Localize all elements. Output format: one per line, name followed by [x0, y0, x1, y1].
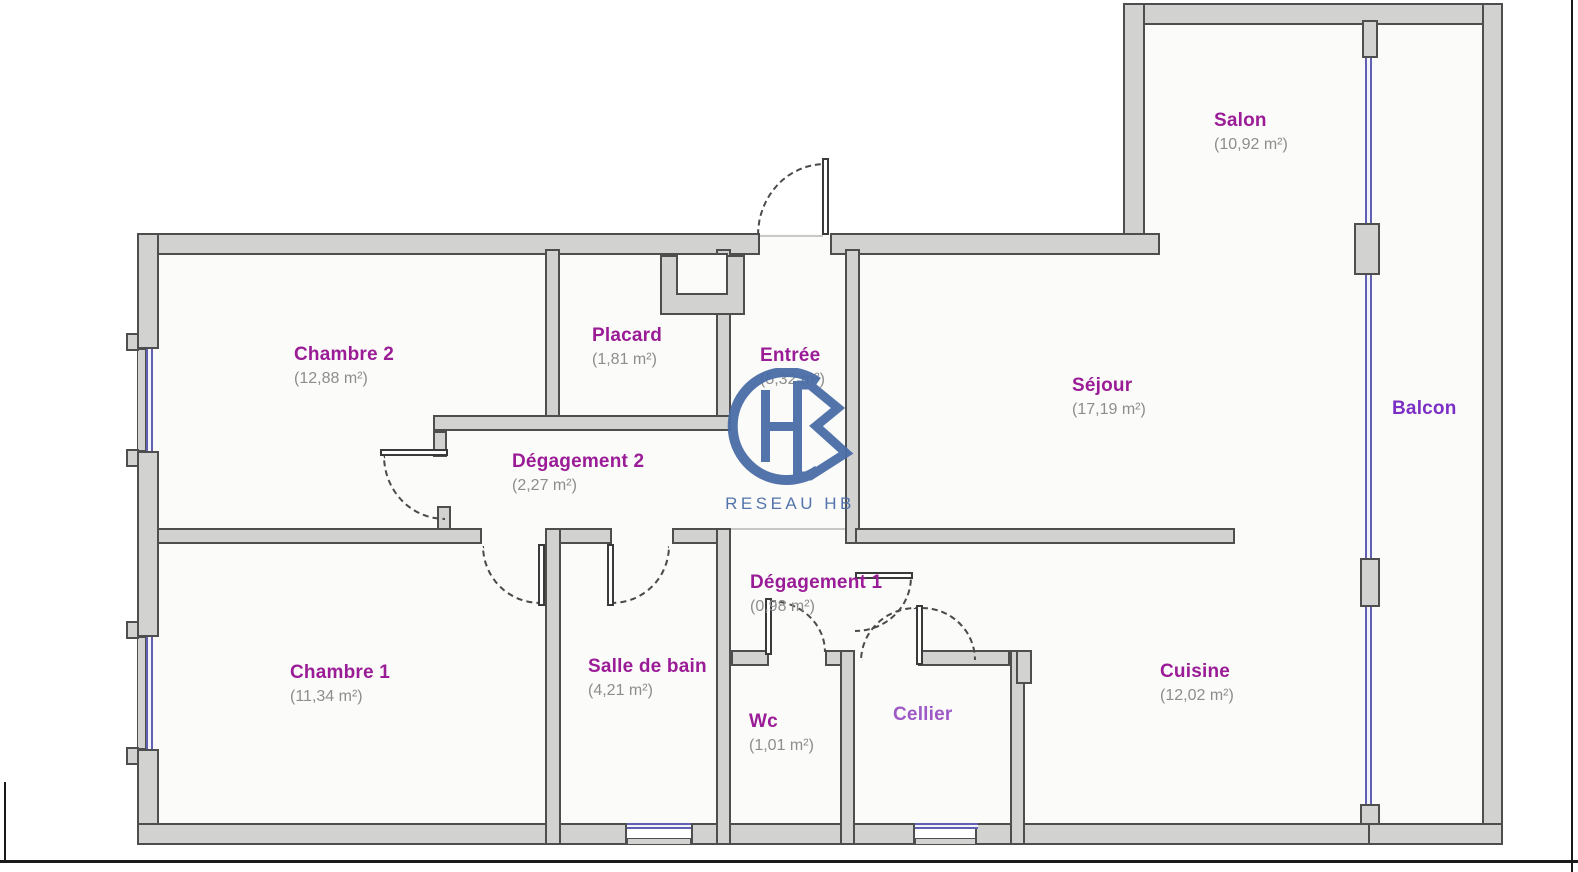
room-area: (10,92 m²)	[1214, 136, 1288, 154]
room-name: Chambre 2	[294, 344, 394, 366]
wall	[433, 415, 731, 431]
wall	[840, 650, 855, 845]
room-area: (0,98 m²)	[750, 598, 882, 616]
threshold-line	[757, 235, 823, 237]
room-label-balcon: Balcon	[1392, 398, 1457, 420]
wall	[137, 349, 146, 451]
room-name: Placard	[592, 325, 662, 347]
room-area: (12,88 m²)	[294, 370, 394, 388]
door-leaf-entrance	[822, 158, 829, 235]
door-leaf-chambre2	[380, 449, 448, 456]
wall	[915, 838, 978, 845]
wall	[1123, 3, 1145, 255]
door-leaf-chambre1	[538, 544, 545, 606]
wall	[1362, 20, 1378, 58]
wall-pier	[1354, 223, 1380, 275]
room-name: Séjour	[1072, 375, 1146, 397]
wall-nub	[126, 449, 139, 467]
room-area: (1,81 m²)	[592, 351, 662, 369]
wall	[1355, 823, 1503, 845]
room-label-degagement2: Dégagement 2 (2,27 m²)	[512, 451, 644, 495]
wall	[731, 650, 769, 666]
room-name: Salon	[1214, 110, 1288, 132]
wall	[545, 528, 561, 845]
wall	[1482, 3, 1503, 845]
room-name: Cellier	[893, 704, 953, 726]
room-area: (4,21 m²)	[588, 682, 707, 700]
room-label-salle-de-bain: Salle de bain (4,21 m²)	[588, 656, 707, 700]
wall	[830, 233, 1160, 255]
room-name: Dégagement 2	[512, 451, 644, 473]
room-label-chambre1: Chambre 1 (11,34 m²)	[290, 662, 390, 706]
wall	[137, 637, 146, 749]
wall-pier	[1360, 558, 1380, 607]
wall	[137, 233, 760, 255]
room-name: Wc	[749, 711, 814, 733]
border-line-right	[1571, 0, 1573, 872]
border-line-left	[4, 782, 6, 860]
window	[1365, 607, 1372, 804]
room-label-sejour: Séjour (17,19 m²)	[1072, 375, 1146, 419]
balcony-floor	[1370, 25, 1482, 823]
door-leaf-salle-de-bain	[607, 544, 614, 606]
window	[1365, 58, 1372, 223]
wall	[1123, 3, 1503, 25]
room-area: (2,27 m²)	[512, 477, 644, 495]
border-line-bottom	[0, 860, 1578, 863]
room-area: (1,01 m²)	[749, 737, 814, 755]
room-label-chambre2: Chambre 2 (12,88 m²)	[294, 344, 394, 388]
wall	[157, 528, 482, 544]
window	[146, 637, 153, 749]
room-area: (12,02 m²)	[1160, 687, 1234, 705]
room-name: Balcon	[1392, 398, 1457, 420]
floor-plan: Salon (10,92 m²) Séjour (17,19 m²) Balco…	[0, 0, 1578, 872]
wall-nub	[126, 621, 139, 639]
wall	[975, 823, 1370, 845]
logo-b-bowls	[797, 385, 846, 476]
wall-nub	[126, 747, 139, 765]
wall	[545, 249, 560, 417]
room-label-cellier: Cellier	[893, 704, 953, 726]
room-label-degagement1: Dégagement 1 (0,98 m²)	[750, 572, 882, 616]
door-leaf-cellier	[916, 605, 923, 665]
wall-nub	[126, 333, 139, 351]
room-label-cuisine: Cuisine (12,02 m²)	[1160, 661, 1234, 705]
wall	[137, 451, 159, 637]
room-label-salon: Salon (10,92 m²)	[1214, 110, 1288, 154]
logo-caption: RESEAU HB	[725, 494, 855, 513]
room-area: (11,34 m²)	[290, 688, 390, 706]
wall	[855, 528, 1235, 544]
room-name: Chambre 1	[290, 662, 390, 684]
wall-niche-opening	[676, 253, 728, 295]
window	[146, 349, 153, 451]
logo-b-stem	[793, 381, 802, 480]
wall	[1016, 650, 1032, 684]
reseau-hb-logo: RESEAU HB	[713, 368, 868, 518]
window	[1365, 275, 1372, 558]
wall-pier	[1360, 804, 1380, 825]
wall	[627, 838, 691, 845]
room-name: Dégagement 1	[750, 572, 882, 594]
room-label-wc: Wc (1,01 m²)	[749, 711, 814, 755]
room-area: (17,19 m²)	[1072, 401, 1146, 419]
window	[627, 823, 691, 829]
room-name: Cuisine	[1160, 661, 1234, 683]
door-arc-entrance	[757, 163, 825, 235]
room-name: Salle de bain	[588, 656, 707, 678]
window	[915, 823, 978, 829]
threshold-line	[731, 528, 845, 530]
wall	[137, 233, 159, 349]
wall	[716, 528, 731, 845]
room-name: Entrée	[760, 345, 825, 367]
hb-monogram	[733, 372, 846, 480]
room-label-placard: Placard (1,81 m²)	[592, 325, 662, 369]
